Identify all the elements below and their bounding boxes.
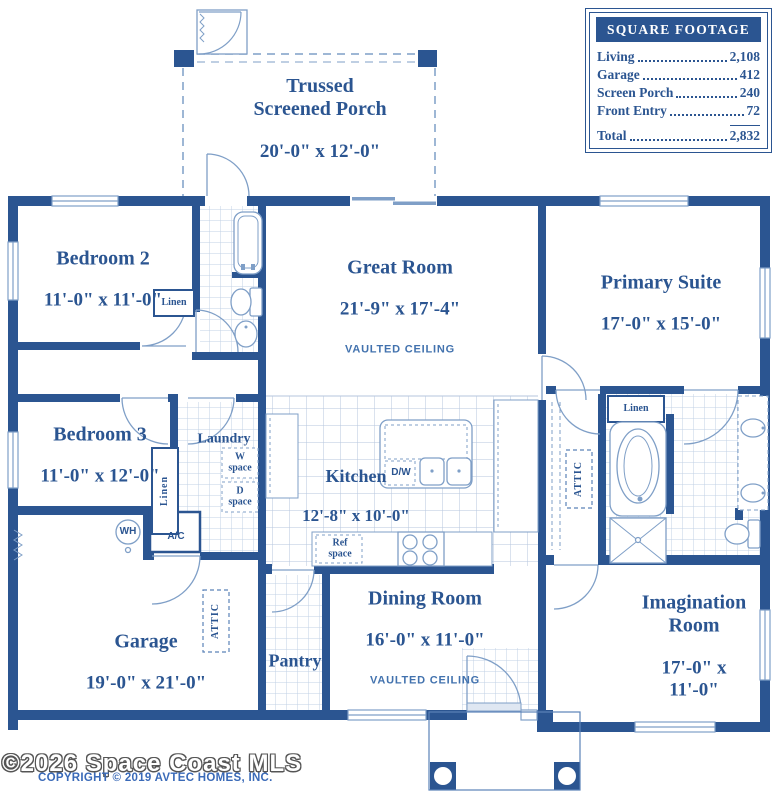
ac-label: A/C xyxy=(167,532,184,543)
water-heater-label: WH xyxy=(120,527,137,538)
linen-label-hall: Linen xyxy=(161,298,186,309)
linen-label-bed3: Linen xyxy=(160,476,171,506)
bathtub-icon xyxy=(234,212,262,274)
room-label-great-room: Great Room 21'-9" x 17'-4" VAULTED CEILI… xyxy=(340,237,460,374)
legend-row-living: Living 2,108 xyxy=(595,48,762,66)
room-label-bedroom2: Bedroom 2 11'-0" x 11'-0" xyxy=(44,229,162,332)
dishwasher-label: D/W xyxy=(391,468,410,479)
legend-row-garage: Garage 412 xyxy=(595,66,762,84)
room-label-bedroom3: Bedroom 3 11'-0" x 12'-0" xyxy=(40,405,159,508)
linen-label-primary: Linen xyxy=(623,404,648,415)
legend-row-total: Total 2,832 xyxy=(595,125,762,145)
double-vanity xyxy=(738,396,768,510)
room-label-imagination-room: Imagination Room 17'-0" x 11'-0" xyxy=(642,573,746,722)
dryer-space-label: D space xyxy=(228,487,251,508)
toilet-icon xyxy=(231,288,262,316)
room-label-laundry: Laundry xyxy=(198,432,251,449)
room-label-screened-porch: Trussed Screened Porch 20'-0" x 12'-0" xyxy=(253,56,386,182)
room-label-primary-suite: Primary Suite 17'-0" x 15'-0" xyxy=(601,253,722,356)
square-footage-legend: SQUARE FOOTAGE Living 2,108 Garage 412 S… xyxy=(585,8,772,153)
legend-row-screen-porch: Screen Porch 240 xyxy=(595,84,762,102)
shower-icon xyxy=(610,518,666,563)
legend-row-front-entry: Front Entry 72 xyxy=(595,102,762,120)
room-label-kitchen: Kitchen 12'-8" x 10'-0" xyxy=(302,447,410,545)
attic-label-garage: ATTIC xyxy=(211,603,222,639)
legend-title: SQUARE FOOTAGE xyxy=(596,17,761,42)
floor-plan: Trussed Screened Porch 20'-0" x 12'-0" B… xyxy=(0,0,782,800)
washer-space-label: W space xyxy=(228,453,251,474)
sink-icon xyxy=(235,321,257,347)
copyright-text: COPYRIGHT © 2019 AVTEC HOMES, INC. xyxy=(38,772,273,784)
attic-label-primary: ATTIC xyxy=(574,461,585,497)
ref-space-label: Ref space xyxy=(328,539,351,560)
closet-shelving xyxy=(552,402,560,550)
primary-tub-icon xyxy=(610,422,666,516)
room-label-pantry: Pantry xyxy=(269,650,322,671)
room-label-dining-room: Dining Room 16'-0" x 11'-0" VAULTED CEIL… xyxy=(365,568,484,705)
room-label-garage: Garage 19'-0" x 21'-0" xyxy=(86,612,206,715)
